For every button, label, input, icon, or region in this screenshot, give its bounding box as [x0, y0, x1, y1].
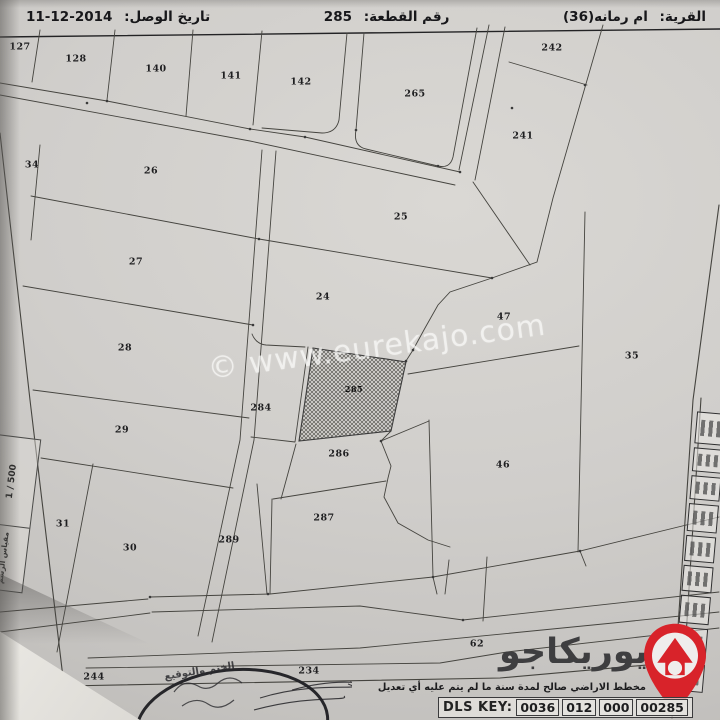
receipt-date-value: 2014-12-11: [26, 9, 112, 25]
dls-key-box: 012: [562, 699, 596, 716]
side-table-cell: [692, 447, 720, 474]
parcel-label-34: 34: [25, 160, 39, 171]
plot-number-value: 285: [324, 9, 352, 25]
parcel-label-242: 242: [541, 43, 562, 54]
dls-key-values: 003601200000285: [516, 699, 687, 716]
parcel-label-127: 127: [9, 42, 30, 53]
side-table-cell: [684, 535, 716, 564]
parcel-label-244: 244: [83, 672, 104, 683]
parcel-label-27: 27: [129, 257, 143, 268]
side-table-cell: [694, 411, 720, 445]
village-value: ام رمانه(36): [563, 9, 648, 25]
parcel-label-142: 142: [290, 77, 311, 88]
plot-number-field: رقم القطعة: 285: [324, 9, 450, 25]
logo-wordmark: يوريكاجو: [500, 632, 648, 672]
village-label: القرية:: [660, 9, 706, 25]
parcel-label-31: 31: [56, 519, 70, 530]
parcel-label-29: 29: [115, 425, 129, 436]
dls-key-box: 0036: [516, 699, 559, 716]
parcel-label-62: 62: [470, 639, 484, 650]
parcel-label-141: 141: [220, 71, 241, 82]
parcel-label-285: 285: [345, 384, 363, 394]
dls-key-label: DLS KEY:: [443, 700, 512, 715]
dls-key-box: 000: [599, 699, 633, 716]
parcel-label-286: 286: [328, 449, 349, 460]
side-table-cell: [681, 565, 713, 594]
side-table-cell: [687, 503, 719, 534]
parcel-label-128: 128: [65, 54, 86, 65]
document-header: القرية: ام رمانه(36) رقم القطعة: 285 تار…: [0, 4, 714, 30]
parcel-label-287: 287: [313, 513, 334, 524]
parcel-label-284: 284: [250, 403, 271, 414]
dls-key-row: DLS KEY: 003601200000285: [438, 697, 693, 718]
side-table-cell: [679, 595, 711, 626]
parcel-label-289: 289: [218, 535, 239, 546]
official-stamp: الختم والتوقيع: [112, 640, 352, 720]
side-table-cell: [689, 475, 720, 502]
parcel-label-265: 265: [404, 89, 425, 100]
village-field: القرية: ام رمانه(36): [563, 9, 714, 25]
parcel-label-25: 25: [394, 212, 408, 223]
stamp-drawing: [112, 640, 352, 720]
validity-disclaimer: مخطط الاراضي صالح لمدة سنة ما لم يتم علي…: [424, 682, 646, 693]
parcel-label-35: 35: [625, 351, 639, 362]
dls-key-box: 00285: [636, 699, 688, 716]
parcel-label-241: 241: [512, 131, 533, 142]
parcel-label-30: 30: [123, 543, 137, 554]
parcel-label-28: 28: [118, 343, 132, 354]
plot-number-label: رقم القطعة:: [364, 9, 450, 25]
parcel-label-46: 46: [496, 460, 510, 471]
parcel-label-26: 26: [144, 166, 158, 177]
parcel-label-140: 140: [145, 64, 166, 75]
cadastral-map-photo: القرية: ام رمانه(36) رقم القطعة: 285 تار…: [0, 0, 720, 720]
parcel-label-24: 24: [316, 292, 330, 303]
receipt-date-label: تاريخ الوصل:: [124, 9, 210, 25]
scale-value: 1 / 500: [5, 463, 19, 499]
receipt-date-field: تاريخ الوصل: 2014-12-11: [0, 9, 210, 25]
